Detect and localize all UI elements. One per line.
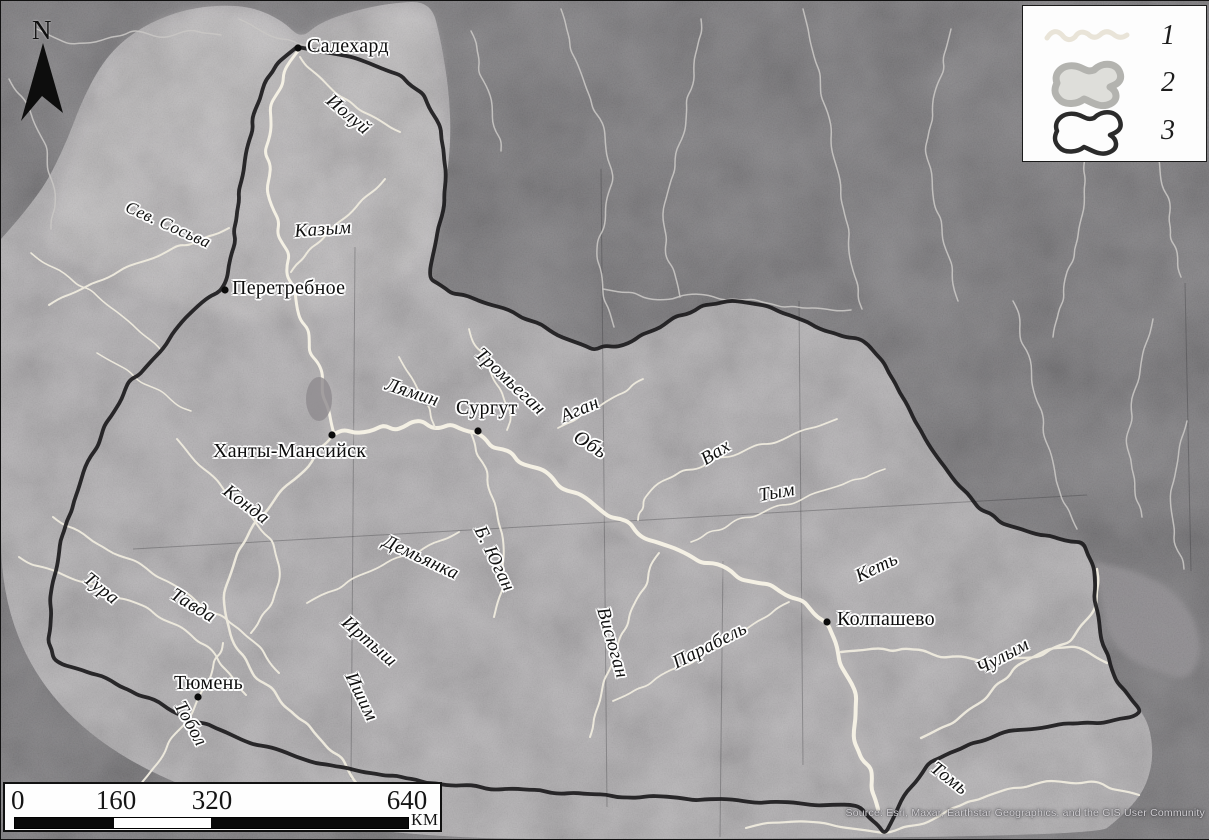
city-dot: [474, 427, 481, 434]
black-region-icon: [1039, 105, 1135, 157]
map-figure: СалехардПеретребноеСургутХанты-МансийскТ…: [0, 0, 1209, 840]
scale-tick: 320: [192, 785, 233, 816]
city-dot: [194, 693, 201, 700]
legend-item-black-region: 3: [1039, 107, 1196, 155]
north-arrow-icon: [15, 43, 71, 127]
scale-tick: 0: [11, 785, 25, 816]
lake: [420, 396, 438, 406]
north-label: N: [32, 15, 52, 46]
legend-item-label: 3: [1161, 115, 1175, 147]
legend-item-river: 1: [1039, 12, 1196, 59]
scale-bar-segments: [14, 817, 409, 829]
legend-item-label: 1: [1161, 20, 1175, 52]
north-arrow: N: [15, 9, 79, 141]
legend-item-label: 2: [1161, 67, 1175, 99]
scale-bar: 0 160 320 640 КМ: [3, 782, 442, 832]
gray-region-icon: [1039, 57, 1135, 109]
city-dot: [221, 286, 228, 293]
scale-unit: КМ: [411, 810, 438, 830]
scale-tick: 160: [96, 785, 137, 816]
river-line-icon: [1039, 25, 1135, 47]
city-dot: [823, 618, 830, 625]
city-dot: [294, 44, 301, 51]
legend-item-gray-region: 2: [1039, 59, 1196, 107]
city-dot: [328, 431, 335, 438]
lake: [306, 377, 332, 421]
attribution-text: Source: Esri, Maxar, Earthstar Geographi…: [846, 807, 1205, 819]
legend: 1 2 3: [1022, 5, 1207, 162]
